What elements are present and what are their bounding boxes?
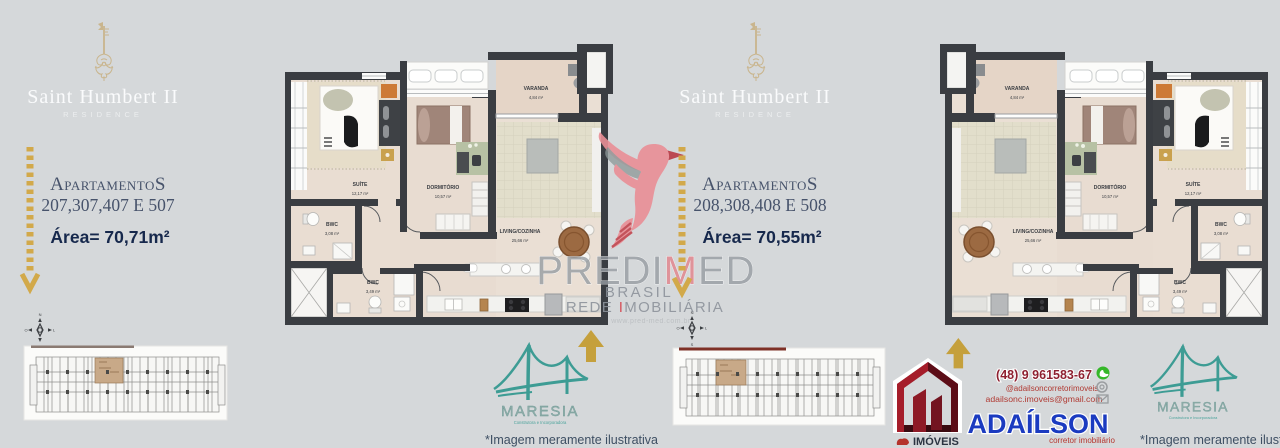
svg-text:4,84 m²: 4,84 m²: [1010, 95, 1025, 100]
svg-text:IMÓVEIS: IMÓVEIS: [913, 435, 959, 448]
svg-text:4,84 m²: 4,84 m²: [529, 95, 544, 100]
svg-text:BWC: BWC: [1174, 280, 1186, 286]
svg-text:Área= 70,55m²: Área= 70,55m²: [702, 226, 821, 247]
svg-text:www.pred-med.com.br: www.pred-med.com.br: [610, 318, 691, 325]
svg-text:25,66 m²: 25,66 m²: [512, 238, 529, 243]
svg-text:ADAÍLSON: ADAÍLSON: [968, 408, 1109, 439]
svg-text:208,308,408 E 508: 208,308,408 E 508: [693, 195, 826, 215]
svg-text:RESIDENCE: RESIDENCE: [63, 110, 143, 119]
svg-text:VARANDA: VARANDA: [1005, 86, 1030, 92]
svg-text:12,17 m²: 12,17 m²: [352, 191, 369, 196]
svg-text:LIVING/COZINHA: LIVING/COZINHA: [500, 229, 541, 235]
svg-text:ApartamentoS: ApartamentoS: [702, 174, 818, 195]
svg-text:ApartamentoS: ApartamentoS: [50, 174, 166, 195]
svg-text:3,49 m²: 3,49 m²: [1173, 289, 1188, 294]
svg-text:10,57 m²: 10,57 m²: [1102, 194, 1119, 199]
svg-text:BWC: BWC: [326, 222, 338, 228]
svg-text:LIVING/COZINHA: LIVING/COZINHA: [1013, 229, 1054, 235]
svg-text:Área= 70,71m²: Área= 70,71m²: [50, 226, 169, 247]
svg-text:*Imagem meramente ilustrativa: *Imagem meramente ilustrativa: [1140, 433, 1280, 447]
svg-text:25,66 m²: 25,66 m²: [1025, 238, 1042, 243]
svg-text:(48) 9 961583-67: (48) 9 961583-67: [996, 368, 1092, 382]
svg-text:10,57 m²: 10,57 m²: [435, 194, 452, 199]
svg-text:@adailsoncorretorimoveis: @adailsoncorretorimoveis: [1006, 384, 1099, 393]
svg-text:3,49 m²: 3,49 m²: [366, 289, 381, 294]
svg-text:3,08 m²: 3,08 m²: [1214, 231, 1229, 236]
svg-text:REDE IMOBILIÁRIA: REDE IMOBILIÁRIA: [566, 299, 724, 316]
svg-text:207,307,407 E 507: 207,307,407 E 507: [41, 195, 174, 215]
svg-text:3,08 m²: 3,08 m²: [325, 231, 340, 236]
svg-text:Saint Humbert II: Saint Humbert II: [679, 86, 831, 108]
svg-text:DORMITÓRIO: DORMITÓRIO: [427, 183, 460, 191]
svg-text:Saint Humbert II: Saint Humbert II: [27, 86, 179, 108]
svg-text:BWC: BWC: [1215, 222, 1227, 228]
svg-text:adailsonc.imoveis@gmail.com: adailsonc.imoveis@gmail.com: [986, 394, 1103, 404]
svg-text:BWC: BWC: [367, 280, 379, 286]
svg-text:SUÍTE: SUÍTE: [1186, 180, 1201, 188]
svg-text:*Imagem meramente ilustrativa: *Imagem meramente ilustrativa: [485, 433, 658, 447]
svg-text:corretor imobiliário: corretor imobiliário: [1049, 436, 1115, 445]
svg-text:DORMITÓRIO: DORMITÓRIO: [1094, 183, 1127, 191]
svg-text:VARANDA: VARANDA: [524, 86, 549, 92]
svg-text:RESIDENCE: RESIDENCE: [715, 110, 795, 119]
svg-text:12,17 m²: 12,17 m²: [1185, 191, 1202, 196]
svg-text:SUÍTE: SUÍTE: [353, 180, 368, 188]
